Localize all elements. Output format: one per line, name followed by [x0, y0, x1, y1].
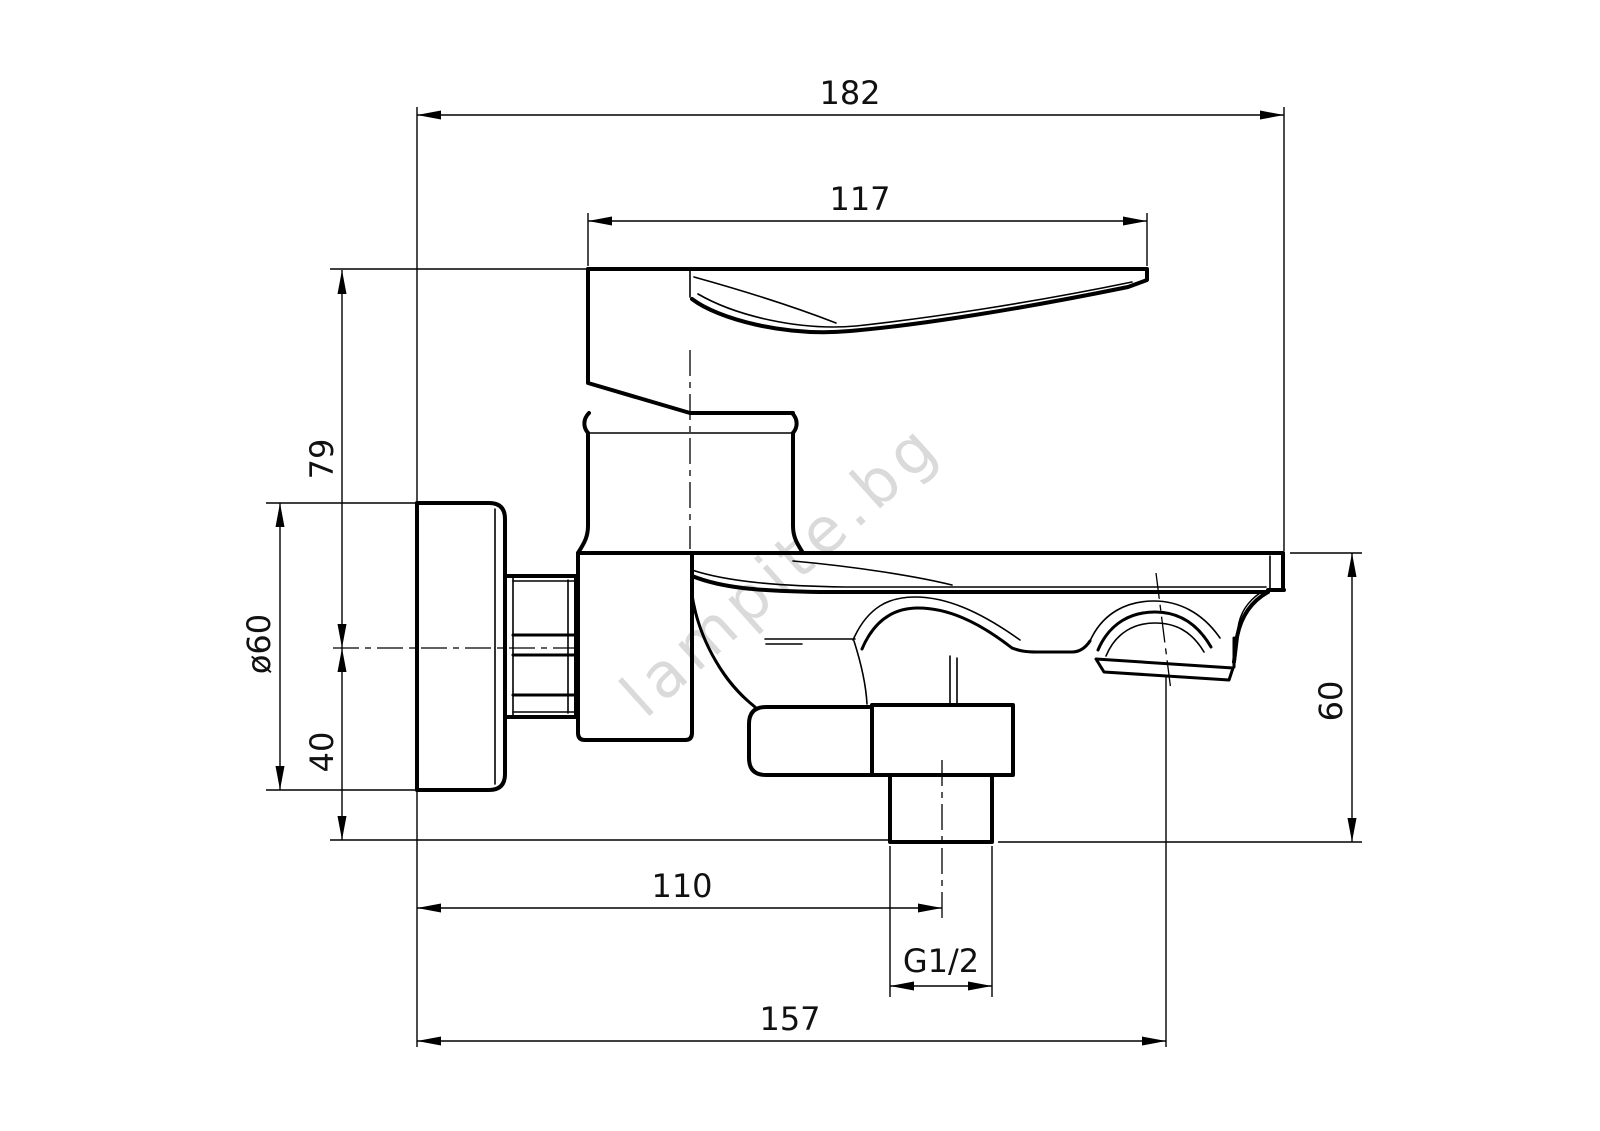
dim-flange-arrow-top [276, 503, 285, 527]
dim-79-label: 79 [303, 439, 341, 480]
dim-182-arrow-right [1260, 111, 1284, 120]
dim-40-arrow-bottom [338, 816, 347, 840]
dim-182-label: 182 [819, 74, 880, 112]
arch3-inner2 [1106, 623, 1204, 656]
arch2-left-foot [854, 641, 867, 704]
dim-182-arrow-left [417, 111, 441, 120]
lever-outline [588, 269, 1147, 332]
dim-117-arrow-left [588, 217, 612, 226]
dim-117-label: 117 [829, 180, 890, 218]
dim-40: 40 [303, 648, 347, 840]
faucet-dimension-drawing: lampite.bg [0, 0, 1600, 1131]
dim-40-arrow-top [338, 648, 347, 672]
dim-thread-arrow-right [968, 982, 992, 991]
dim-40-label: 40 [303, 732, 341, 773]
watermark: lampite.bg [606, 407, 954, 731]
faucet-outline [417, 269, 1284, 842]
collar-right [792, 413, 797, 433]
collar-left [584, 413, 589, 433]
outlet-pipe-outline [890, 775, 992, 842]
dim-79-arrow-bottom [338, 624, 347, 648]
dim-110-arrow-right [918, 904, 942, 913]
spout-tip-underside [1234, 592, 1268, 662]
technical-drawing-page: lampite.bg [0, 0, 1600, 1131]
valley-bottom [1012, 641, 1090, 652]
dim-thread-arrow-left [890, 982, 914, 991]
dim-117: 117 [588, 180, 1147, 226]
arch2-inner [862, 608, 1012, 649]
dim-157-label: 157 [759, 1000, 820, 1038]
dim-79: 79 [303, 270, 347, 648]
dim-110-arrow-left [417, 904, 441, 913]
body-left-edge [578, 433, 588, 553]
dim-157: 157 [417, 1000, 1166, 1046]
dim-thread-label: G1/2 [903, 942, 979, 980]
arch3-outer [1090, 601, 1220, 641]
dim-60-arrow-bottom [1348, 818, 1357, 842]
dim-thread: G1/2 [890, 942, 992, 991]
diverter-knob-outline [749, 707, 872, 775]
watermark-text: lampite.bg [606, 407, 954, 731]
dim-60-label: 60 [1312, 681, 1350, 722]
dim-flange-arrow-bottom [276, 766, 285, 790]
dim-flange-label: ø60 [240, 614, 278, 674]
flange-outline [417, 503, 505, 790]
dim-60-arrow-top [1348, 553, 1357, 577]
lever-base-curve [694, 277, 836, 323]
arch3-inner [1098, 612, 1211, 650]
dim-182: 182 [417, 74, 1284, 120]
lever-inner-edge [698, 282, 1132, 327]
dim-flange-diameter: ø60 [240, 503, 285, 790]
dim-79-arrow-top [338, 270, 347, 294]
arch2-outer [853, 597, 1020, 640]
dim-110-label: 110 [651, 867, 712, 905]
aerator-plate [1096, 659, 1233, 680]
dim-110: 110 [417, 867, 942, 913]
dim-60: 60 [1312, 553, 1357, 842]
dim-157-arrow-right [1142, 1037, 1166, 1046]
dim-157-arrow-left [417, 1037, 441, 1046]
dim-117-arrow-right [1123, 217, 1147, 226]
